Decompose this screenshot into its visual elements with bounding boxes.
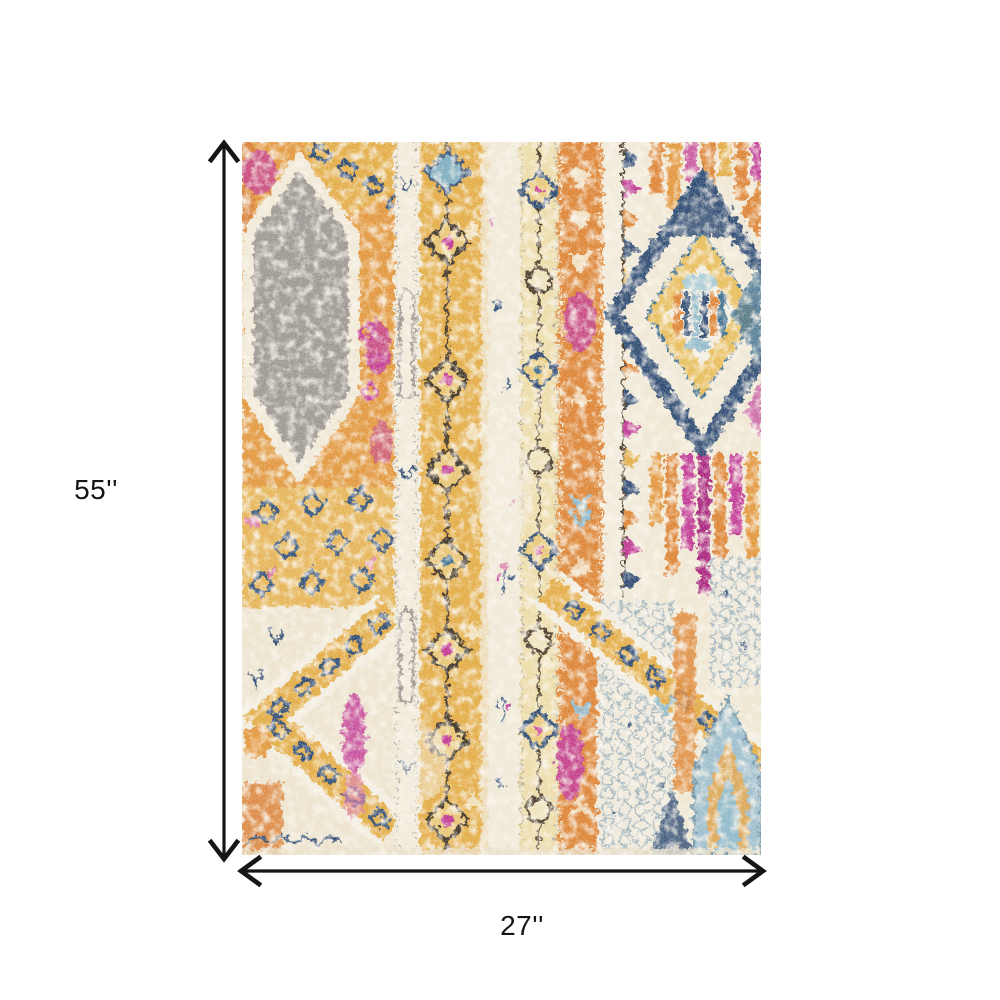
horizontal-dimension-arrow: [241, 858, 763, 884]
product-dimension-diagram: 55'' 27'': [0, 0, 1000, 1000]
width-dimension-label: 27'': [462, 910, 582, 942]
rug-art: [242, 142, 761, 855]
vertical-dimension-arrow: [211, 143, 237, 859]
rug-image: [242, 142, 761, 855]
height-dimension-label: 55'': [40, 474, 152, 506]
